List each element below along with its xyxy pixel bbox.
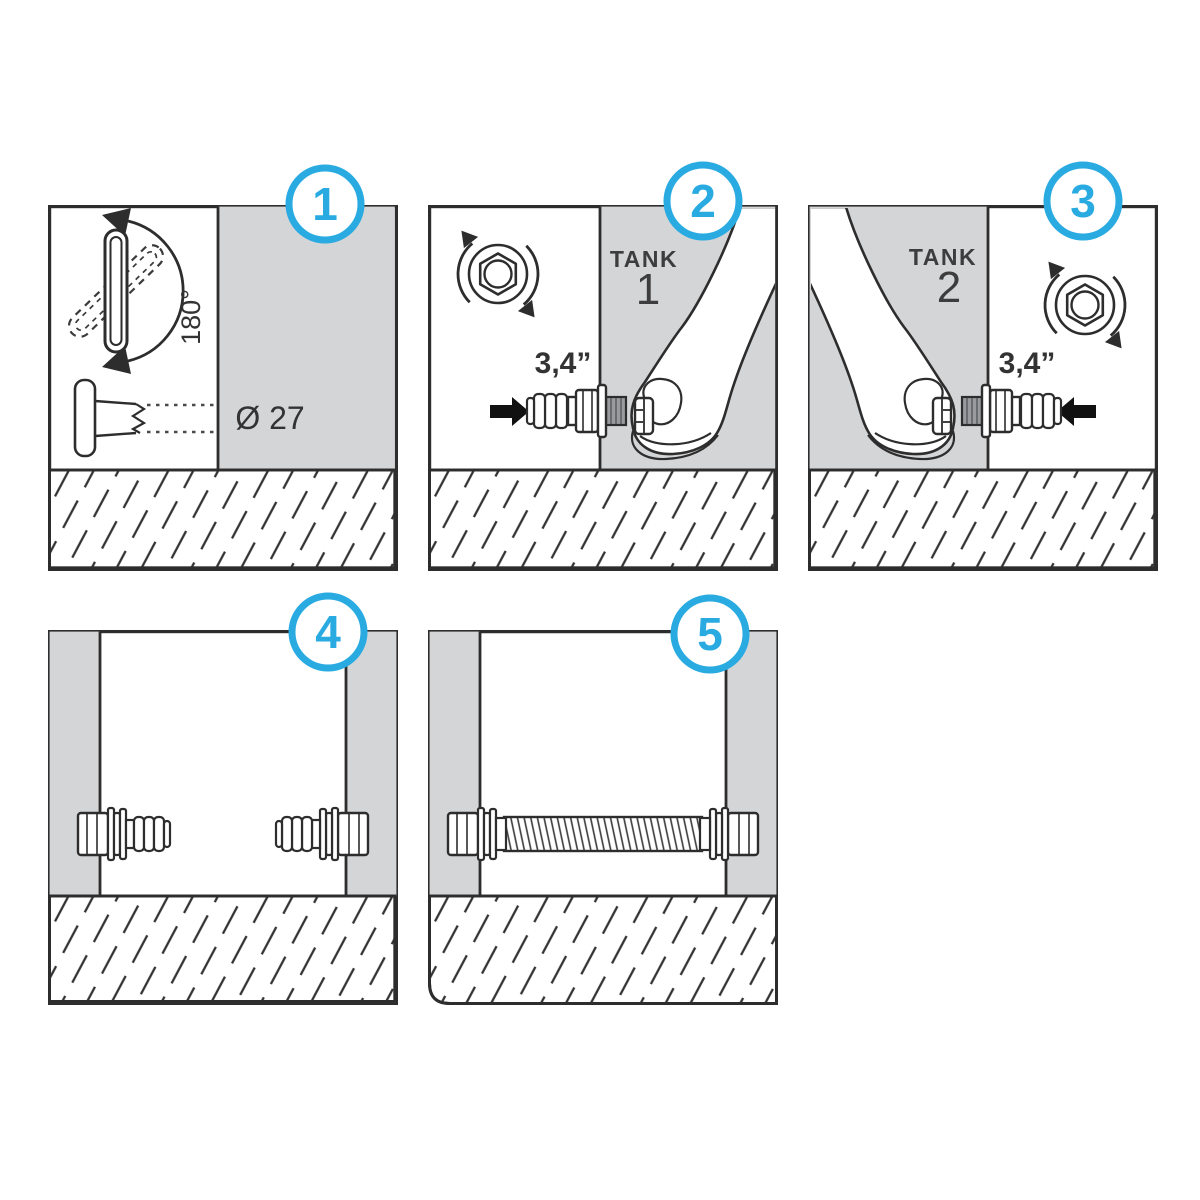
- badge-number: 2: [690, 175, 716, 227]
- badge-number: 1: [312, 178, 338, 230]
- rotation-angle-label: 180°: [176, 289, 206, 345]
- step-badge-4: 4: [292, 596, 364, 668]
- step-badge-3: 3: [1047, 165, 1119, 237]
- fitting-size-label: 3,4”: [999, 347, 1056, 380]
- left-tank-wall: [430, 632, 480, 896]
- left-tank-wall: [50, 632, 100, 896]
- ground-hatch: [430, 896, 777, 1003]
- ground-hatch: [50, 470, 395, 568]
- step-badge-5: 5: [674, 598, 746, 670]
- hose-corrugation: [505, 818, 701, 850]
- step-panel-1: 180° Ø 27 1: [50, 168, 397, 569]
- ground-hatch: [430, 470, 775, 568]
- step-panel-5: 5: [430, 598, 777, 1003]
- ground-hatch: [810, 470, 1155, 568]
- fitting-size-label: 3,4”: [535, 347, 592, 380]
- installation-diagram: 180° Ø 27 1 TANK 1 3,4”: [0, 0, 1200, 1200]
- badge-number: 3: [1070, 175, 1096, 227]
- toggle-anchor: [105, 230, 127, 352]
- tank-number-label: 2: [937, 263, 961, 312]
- step-panel-3: TANK 2 3,4” 3: [794, 165, 1156, 569]
- right-tank-wall: [726, 632, 776, 896]
- hole-diameter-label: Ø 27: [235, 400, 304, 436]
- badge-number: 4: [315, 606, 341, 658]
- instruction-sheet: 180° Ø 27 1 TANK 1 3,4”: [0, 0, 1200, 1200]
- step-badge-2: 2: [667, 165, 739, 237]
- step-panel-2: TANK 1 3,4” 2: [430, 165, 792, 569]
- step-badge-1: 1: [289, 168, 361, 240]
- badge-number: 5: [697, 608, 723, 660]
- right-tank-wall: [346, 632, 396, 896]
- ground-hatch: [50, 896, 395, 1001]
- step-panel-4: 4: [50, 596, 397, 1003]
- tank-number-label: 1: [636, 265, 660, 314]
